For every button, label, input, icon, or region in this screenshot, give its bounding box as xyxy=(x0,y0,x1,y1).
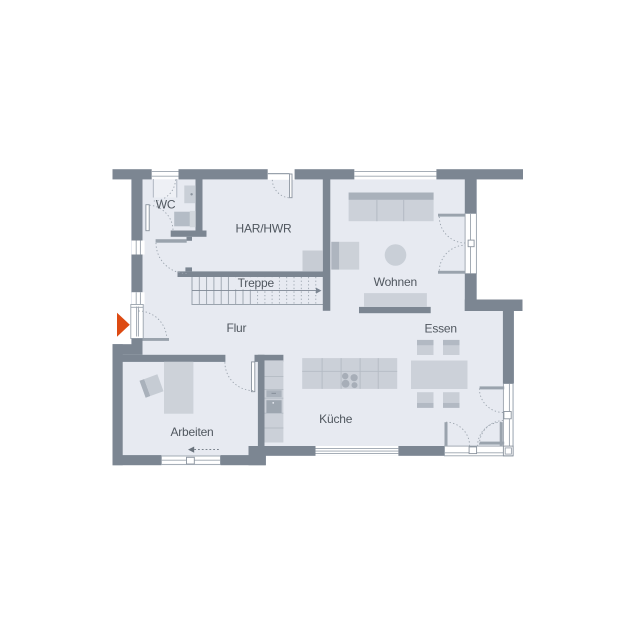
svg-text:Treppe: Treppe xyxy=(238,276,275,290)
svg-text:Essen: Essen xyxy=(425,322,457,336)
svg-text:Arbeiten: Arbeiten xyxy=(170,425,213,439)
svg-text:WC: WC xyxy=(156,198,176,212)
svg-text:Flur: Flur xyxy=(226,321,246,335)
svg-text:Wohnen: Wohnen xyxy=(374,275,417,289)
svg-text:Küche: Küche xyxy=(319,412,353,426)
svg-text:HAR/HWR: HAR/HWR xyxy=(236,222,292,236)
